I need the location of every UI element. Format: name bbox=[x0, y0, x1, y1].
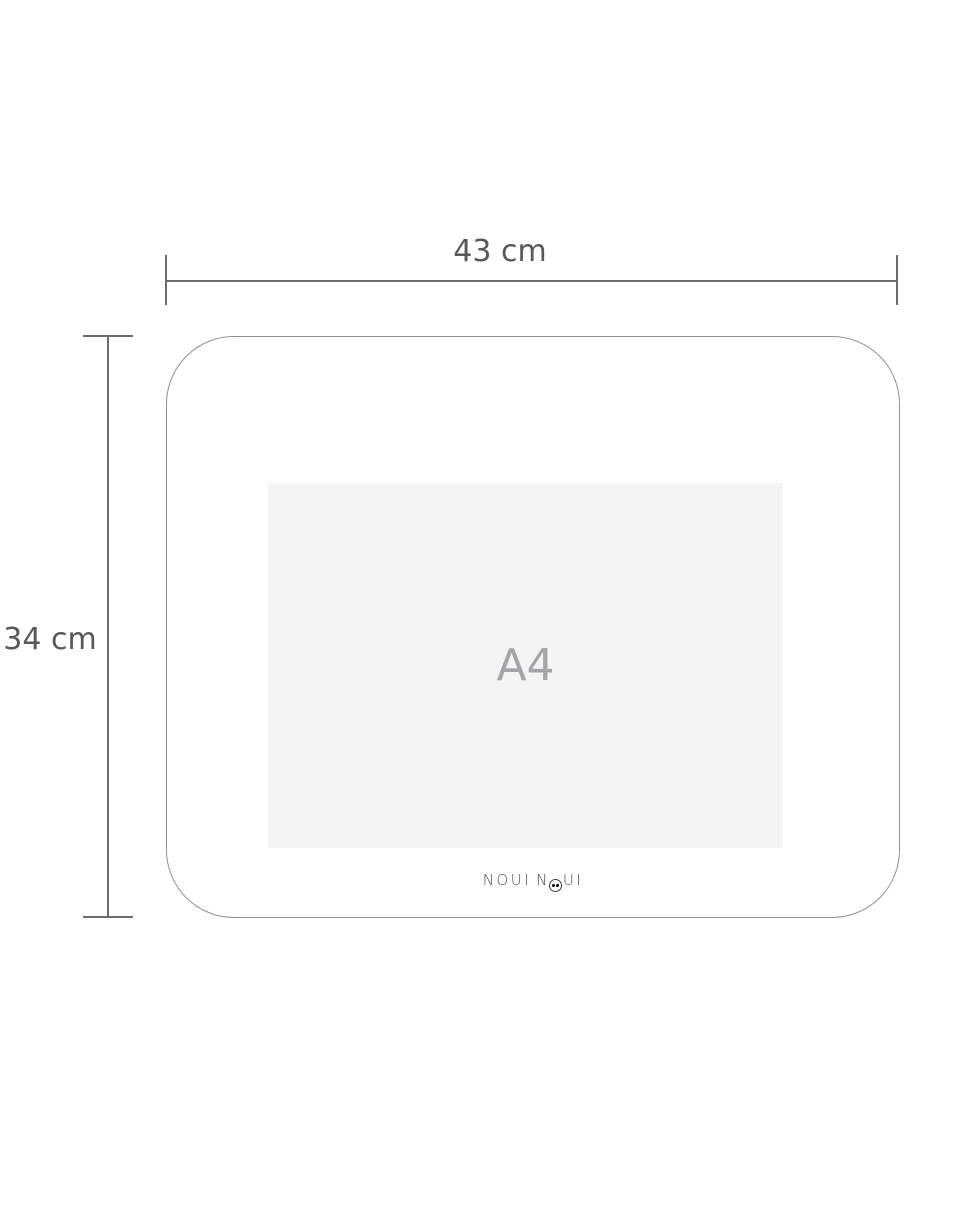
brand-word-1: NOUI bbox=[483, 872, 531, 888]
a4-reference-label: A4 bbox=[496, 644, 554, 688]
dimension-diagram: 43 cm 34 cm A4 NOUINUI bbox=[0, 0, 970, 1213]
height-dimension-label: 34 cm bbox=[0, 624, 100, 656]
brand-word-2-start: N bbox=[536, 872, 550, 888]
eye-dot-left bbox=[552, 884, 555, 887]
placemat-outline: A4 NOUINUI bbox=[166, 336, 900, 918]
width-dimension-tick-left bbox=[165, 255, 167, 305]
eye-o-icon bbox=[549, 879, 562, 892]
height-dimension-line bbox=[107, 336, 109, 918]
width-dimension-label: 43 cm bbox=[430, 236, 570, 268]
height-dimension-tick-bottom bbox=[83, 916, 133, 918]
brand-logo: NOUINUI bbox=[167, 872, 899, 892]
height-dimension-tick-top bbox=[83, 335, 133, 337]
width-dimension-line bbox=[166, 280, 898, 282]
eye-dot-right bbox=[556, 884, 559, 887]
width-dimension-tick-right bbox=[896, 255, 898, 305]
a4-reference-area: A4 bbox=[268, 483, 783, 848]
brand-word-2-end: UI bbox=[563, 872, 583, 888]
